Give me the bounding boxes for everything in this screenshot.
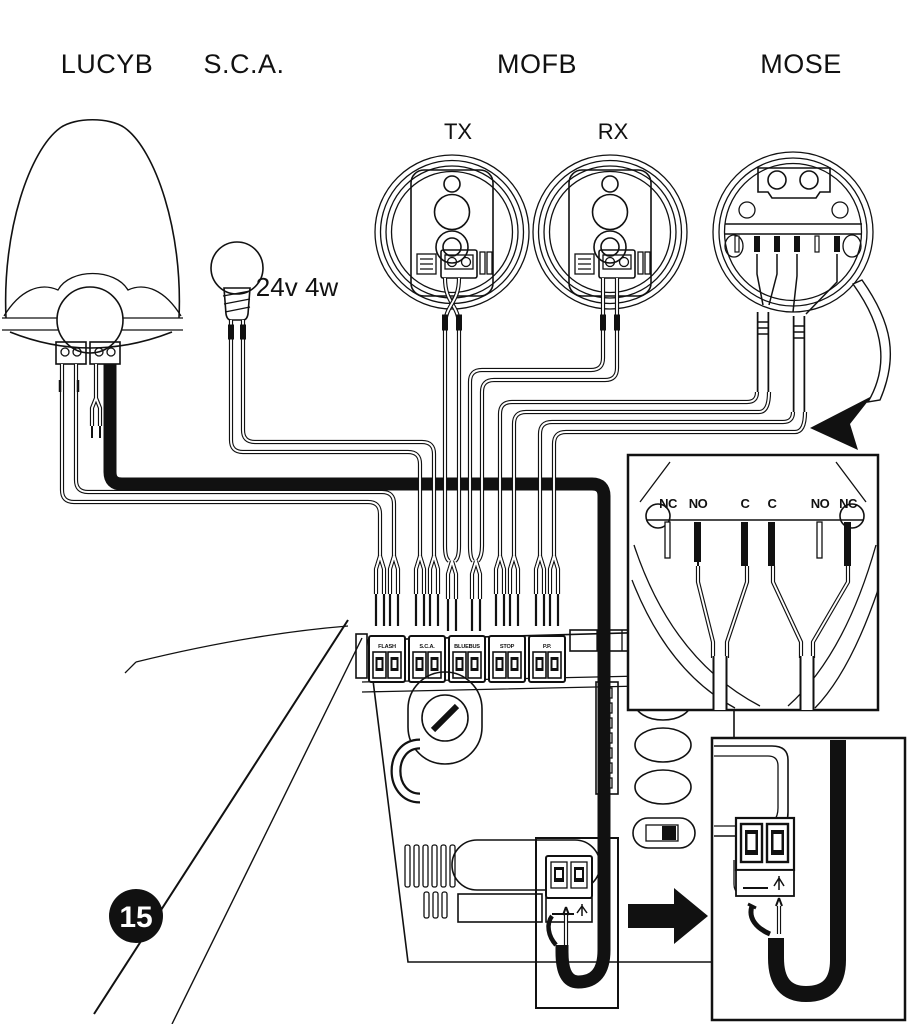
terminal-block-flash: FLASH (369, 636, 405, 682)
contact-label-nc-2: NC (839, 496, 858, 511)
terminal-label-stop: STOP (500, 644, 515, 650)
contact-label-nc-1: NC (659, 496, 678, 511)
contact-label-no-1: NO (689, 496, 708, 511)
antenna-connection-inset (712, 738, 905, 1020)
contact-label-no-2: NO (811, 496, 830, 511)
wiring-diagram-figure: FLASH S.C.A. BLUEBUS STOP P.P. (0, 0, 909, 1024)
figure-number: 15 (119, 901, 152, 934)
figure-number-badge: 15 (109, 889, 163, 943)
curved-arrow-head (810, 396, 872, 450)
terminal-block-sca: S.C.A. (409, 636, 445, 682)
label-rx: RX (598, 119, 629, 144)
label-lucyb: LUCYB (61, 49, 154, 79)
terminal-label-flash: FLASH (378, 644, 396, 650)
terminal-label-bluebus: BLUEBUS (454, 644, 480, 650)
label-tx: TX (444, 119, 472, 144)
label-mofb: MOFB (497, 49, 577, 79)
diagram-canvas: FLASH S.C.A. BLUEBUS STOP P.P. (0, 0, 909, 1024)
curved-arrow (853, 280, 890, 402)
inset-antenna-terminal (736, 818, 794, 896)
lucyb-lamp (2, 120, 183, 364)
mofb-tx-photocell (375, 155, 529, 309)
contact-label-c-1: C (741, 496, 751, 511)
terminal-block-pp: P.P. (529, 636, 565, 682)
wire-crimps (60, 316, 619, 438)
motor-cover-outline (94, 620, 362, 1024)
terminal-label-pp: P.P. (543, 644, 552, 650)
mofb-rx-photocell (533, 155, 687, 309)
contact-label-c-2: C (768, 496, 778, 511)
terminal-block-stop: STOP (489, 636, 525, 682)
label-bulb-spec: 24v 4w (256, 272, 339, 302)
mose-key-selector (713, 152, 873, 412)
mose-terminal-inset: NC NO C C NO NC (628, 455, 878, 710)
label-mose: MOSE (760, 49, 842, 79)
terminal-label-sca: S.C.A. (419, 644, 435, 650)
label-sca: S.C.A. (203, 49, 284, 79)
mose-contact-pins (735, 236, 840, 252)
terminal-block-bluebus: BLUEBUS (449, 636, 485, 682)
